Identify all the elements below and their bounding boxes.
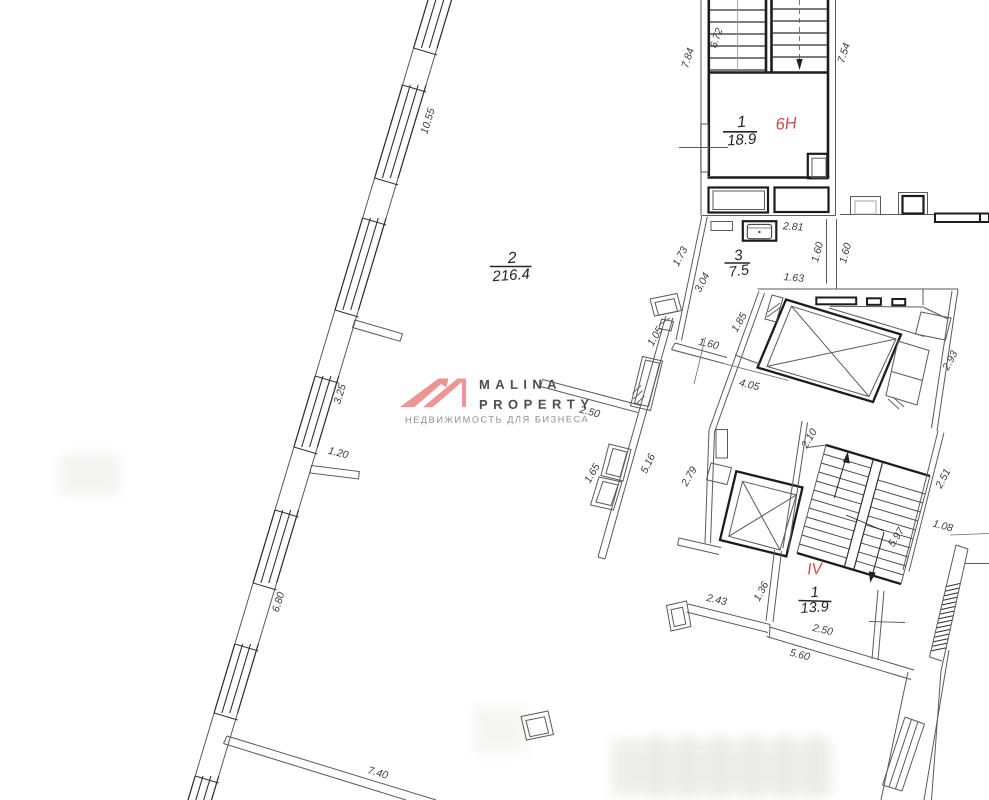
- svg-text:1: 1: [810, 584, 820, 602]
- svg-text:2.81: 2.81: [782, 220, 804, 233]
- svg-text:13.9: 13.9: [800, 599, 829, 617]
- svg-text:НЕДВИЖИМОСТЬ ДЛЯ БИЗНЕСА: НЕДВИЖИМОСТЬ ДЛЯ БИЗНЕСА: [405, 414, 589, 425]
- svg-text:IV: IV: [807, 560, 825, 578]
- svg-text:1.63: 1.63: [783, 271, 805, 285]
- svg-text:6Н: 6Н: [775, 114, 797, 133]
- svg-text:18.9: 18.9: [727, 130, 758, 149]
- svg-text:MALINA: MALINA: [479, 377, 562, 392]
- svg-text:PROPERTY: PROPERTY: [479, 396, 595, 412]
- svg-text:216.4: 216.4: [491, 266, 531, 286]
- svg-text:2: 2: [506, 250, 517, 268]
- svg-text:1: 1: [737, 114, 747, 132]
- svg-text:7.5: 7.5: [728, 262, 751, 281]
